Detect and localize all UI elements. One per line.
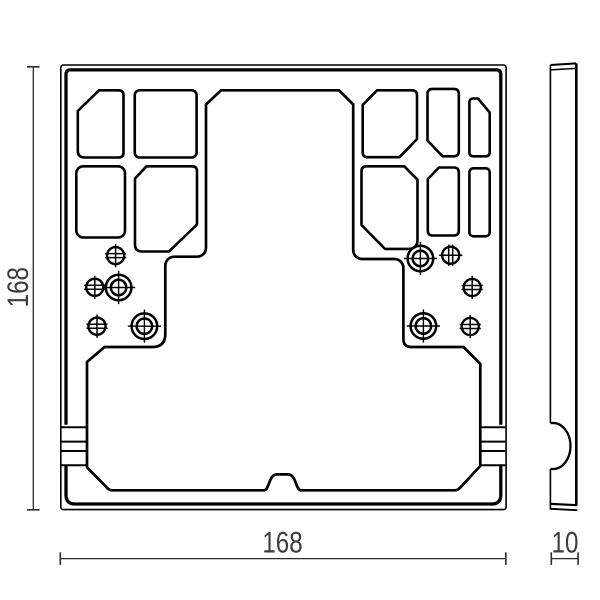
svg-text:168: 168 (2, 267, 35, 307)
svg-text:10: 10 (552, 526, 579, 559)
svg-text:168: 168 (262, 526, 302, 559)
